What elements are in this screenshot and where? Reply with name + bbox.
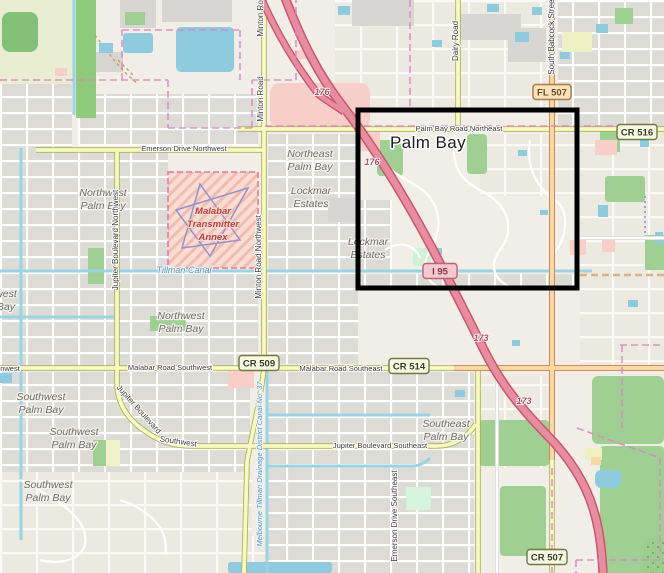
- svg-text:Bay: Bay: [0, 301, 16, 313]
- road-label-palm-bay-road-ne: Palm Bay Road Northeast: [416, 124, 504, 133]
- road-label-jupiter-blvd-se: Jupiter Boulevard Southeast: [333, 441, 428, 450]
- shield-cr-514: CR 514: [389, 359, 429, 374]
- svg-text:Southwest: Southwest: [23, 479, 73, 491]
- svg-text:Lockmar: Lockmar: [291, 185, 332, 197]
- road-label-minton-road-partial: Minton Road: [256, 0, 265, 37]
- svg-text:Northwest: Northwest: [157, 310, 205, 322]
- road-label-minton-road: Minton Road: [256, 76, 265, 121]
- neighborhood-label-southwest-palm-bay-1: Southwest Palm Bay: [16, 391, 66, 416]
- svg-text:CR 509: CR 509: [243, 359, 275, 370]
- svg-text:Transmitter: Transmitter: [187, 219, 240, 230]
- svg-text:Estates: Estates: [293, 198, 329, 210]
- road-label-minton-road-nw: Minton Road Northwest: [254, 214, 263, 298]
- exit-ref-176-b: 176: [364, 157, 380, 167]
- svg-text:Malabar: Malabar: [195, 206, 232, 217]
- road-label-emerson-drive-nw: Emerson Drive Northwest: [141, 144, 227, 153]
- road-label-emerson-drive-se: Emerson Drive Southeast: [390, 470, 399, 562]
- exit-ref-173-a: 173: [473, 333, 488, 343]
- road-label-dairy-road: Dairy Road: [451, 21, 460, 61]
- water-label-tillman-canal: Tillman Canal: [157, 265, 213, 275]
- map-canvas[interactable]: Palm Bay Northeast Palm Bay Lockmar Esta…: [0, 0, 664, 573]
- exit-ref-173-b: 173: [516, 396, 531, 406]
- road-label-malabar-road-sw: Malabar Road Southwest: [128, 363, 213, 372]
- shield-fl-507: FL 507: [533, 85, 571, 100]
- neighborhood-label-northeast-palm-bay: Northeast Palm Bay: [287, 148, 334, 173]
- neighborhood-label-lockmar-estates-1: Lockmar Estates: [291, 185, 332, 210]
- svg-text:Palm Bay: Palm Bay: [26, 492, 72, 504]
- shield-i-95: I 95: [423, 264, 457, 279]
- map-svg[interactable]: Palm Bay Northeast Palm Bay Lockmar Esta…: [0, 0, 664, 573]
- exit-ref-176-a: 176: [314, 87, 330, 97]
- svg-text:Southwest: Southwest: [49, 426, 99, 438]
- svg-text:FL 507: FL 507: [537, 88, 567, 99]
- shield-cr-509: CR 509: [239, 356, 279, 371]
- neighborhood-label-southeast-palm-bay: Southeast Palm Bay: [422, 418, 470, 443]
- svg-text:CR 514: CR 514: [393, 362, 426, 373]
- road-label-malabar-road-se: Malabar Road Southeast: [300, 364, 384, 373]
- neighborhood-label-southwest-palm-bay-2: Southwest Palm Bay: [49, 426, 99, 451]
- svg-text:CR 516: CR 516: [621, 128, 653, 139]
- svg-text:Lockmar: Lockmar: [348, 236, 389, 248]
- shield-cr-507: CR 507: [527, 550, 567, 565]
- svg-text:Palm Bay: Palm Bay: [159, 323, 205, 335]
- svg-text:Palm Bay: Palm Bay: [19, 404, 65, 416]
- neighborhood-label-southwest-palm-bay-3: Southwest Palm Bay: [23, 479, 73, 504]
- road-label-edge-partial-nwest: nwest: [0, 364, 21, 373]
- svg-text:Southeast: Southeast: [422, 418, 470, 430]
- svg-text:CR 507: CR 507: [531, 553, 563, 564]
- svg-text:Palm Bay: Palm Bay: [424, 431, 470, 443]
- neighborhood-label-lockmar-estates-2: Lockmar Estates: [348, 236, 389, 261]
- svg-text:west: west: [0, 288, 18, 300]
- svg-text:Annex: Annex: [197, 232, 228, 243]
- svg-text:I 95: I 95: [432, 267, 449, 278]
- road-label-south-babcock-street: South Babcock Street: [547, 0, 556, 75]
- neighborhood-label-northwest-palm-bay-1: Northwest Palm Bay: [79, 187, 127, 212]
- svg-text:Northwest: Northwest: [79, 187, 127, 199]
- road-label-jupiter-blvd-nw: Jupiter Boulevard Northwest: [111, 189, 120, 290]
- shield-cr-516: CR 516: [617, 125, 657, 140]
- svg-text:Palm Bay: Palm Bay: [288, 161, 334, 173]
- svg-text:Northeast: Northeast: [287, 148, 334, 160]
- neighborhood-label-northwest-palm-bay-2: Northwest Palm Bay: [157, 310, 205, 335]
- svg-text:Palm Bay: Palm Bay: [52, 439, 98, 451]
- water-label-drainage-canal: Melbourne Tillman Drainage District Cana…: [255, 381, 264, 547]
- svg-text:Southwest: Southwest: [16, 391, 66, 403]
- city-label-palm-bay: Palm Bay: [390, 133, 466, 152]
